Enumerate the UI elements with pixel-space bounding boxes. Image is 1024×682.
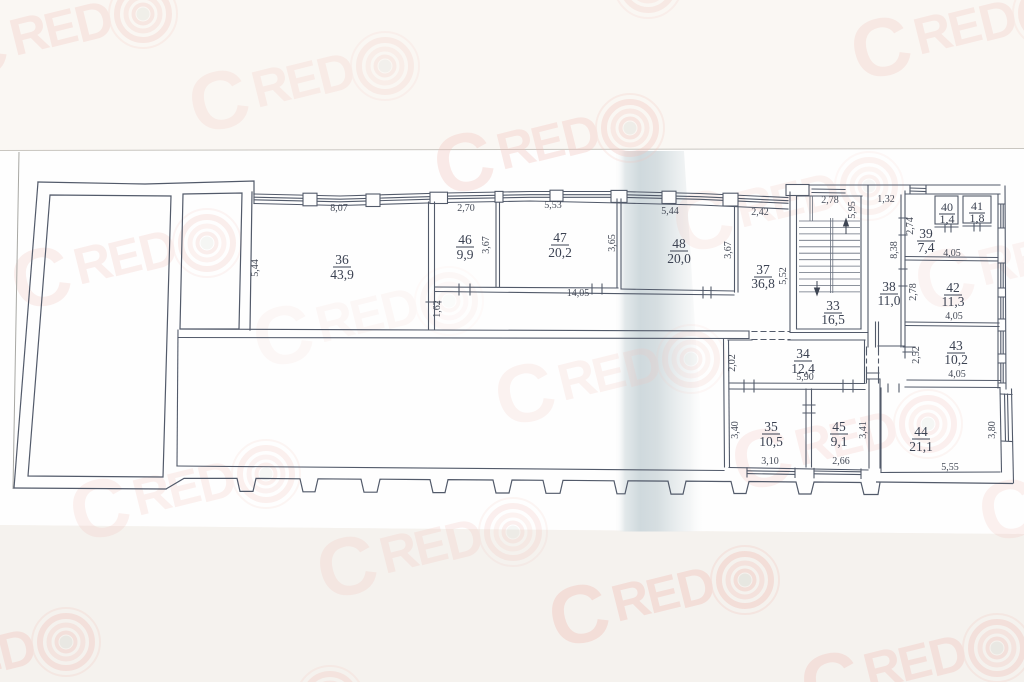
svg-text:47: 47 [553,230,567,245]
svg-text:5,52: 5,52 [778,267,789,285]
svg-text:39: 39 [919,226,933,241]
svg-text:5,55: 5,55 [941,462,959,473]
svg-text:16,5: 16,5 [821,312,845,327]
svg-text:3,67: 3,67 [481,236,492,254]
svg-text:2,78: 2,78 [908,283,919,301]
svg-text:5,90: 5,90 [796,372,814,383]
svg-text:5,95: 5,95 [847,201,858,219]
svg-text:34: 34 [796,346,810,361]
svg-text:4,05: 4,05 [945,311,963,322]
svg-text:42: 42 [946,280,960,295]
svg-text:2,52: 2,52 [911,346,922,364]
svg-text:33: 33 [826,298,840,313]
svg-text:8,07: 8,07 [330,203,348,214]
svg-text:4,05: 4,05 [943,248,961,259]
svg-text:20,0: 20,0 [667,251,691,266]
svg-text:45: 45 [832,419,846,434]
svg-text:38: 38 [882,279,896,294]
svg-text:3,41: 3,41 [858,421,869,439]
svg-text:2,02: 2,02 [727,354,738,372]
svg-text:1,8: 1,8 [970,211,985,225]
svg-text:3,10: 3,10 [761,456,779,467]
svg-text:43: 43 [949,338,963,353]
svg-text:3,67: 3,67 [723,241,734,259]
svg-text:9,9: 9,9 [457,247,474,262]
svg-text:9,1: 9,1 [831,434,848,449]
svg-text:8,38: 8,38 [889,241,900,259]
svg-text:3,80: 3,80 [987,421,998,439]
svg-text:5,44: 5,44 [250,259,261,277]
svg-text:37: 37 [756,262,770,277]
svg-text:2,66: 2,66 [832,456,850,467]
svg-text:1,4: 1,4 [940,212,955,226]
svg-text:36: 36 [335,252,349,267]
svg-text:3,40: 3,40 [730,421,741,439]
svg-text:2,74: 2,74 [905,217,916,235]
svg-text:48: 48 [672,236,686,251]
svg-text:7,4: 7,4 [918,240,935,255]
svg-text:3,65: 3,65 [607,234,618,252]
svg-text:1,62: 1,62 [432,300,443,318]
svg-text:14,05: 14,05 [567,288,590,299]
svg-text:4,05: 4,05 [948,369,966,380]
svg-text:5,44: 5,44 [661,206,679,217]
svg-text:10,2: 10,2 [944,352,968,367]
svg-text:21,1: 21,1 [909,439,933,454]
svg-text:11,0: 11,0 [877,293,900,308]
svg-text:20,2: 20,2 [548,245,572,260]
svg-text:2,78: 2,78 [821,195,839,206]
svg-text:43,9: 43,9 [330,267,354,282]
svg-text:1,32: 1,32 [877,194,895,205]
svg-text:11,3: 11,3 [941,294,964,309]
svg-text:44: 44 [914,424,928,439]
svg-text:10,5: 10,5 [759,434,783,449]
svg-text:36,8: 36,8 [751,276,775,291]
svg-text:2,70: 2,70 [457,203,475,214]
svg-text:46: 46 [458,232,472,247]
svg-text:2,42: 2,42 [751,207,769,218]
svg-text:35: 35 [764,419,778,434]
svg-text:5,53: 5,53 [544,200,562,211]
